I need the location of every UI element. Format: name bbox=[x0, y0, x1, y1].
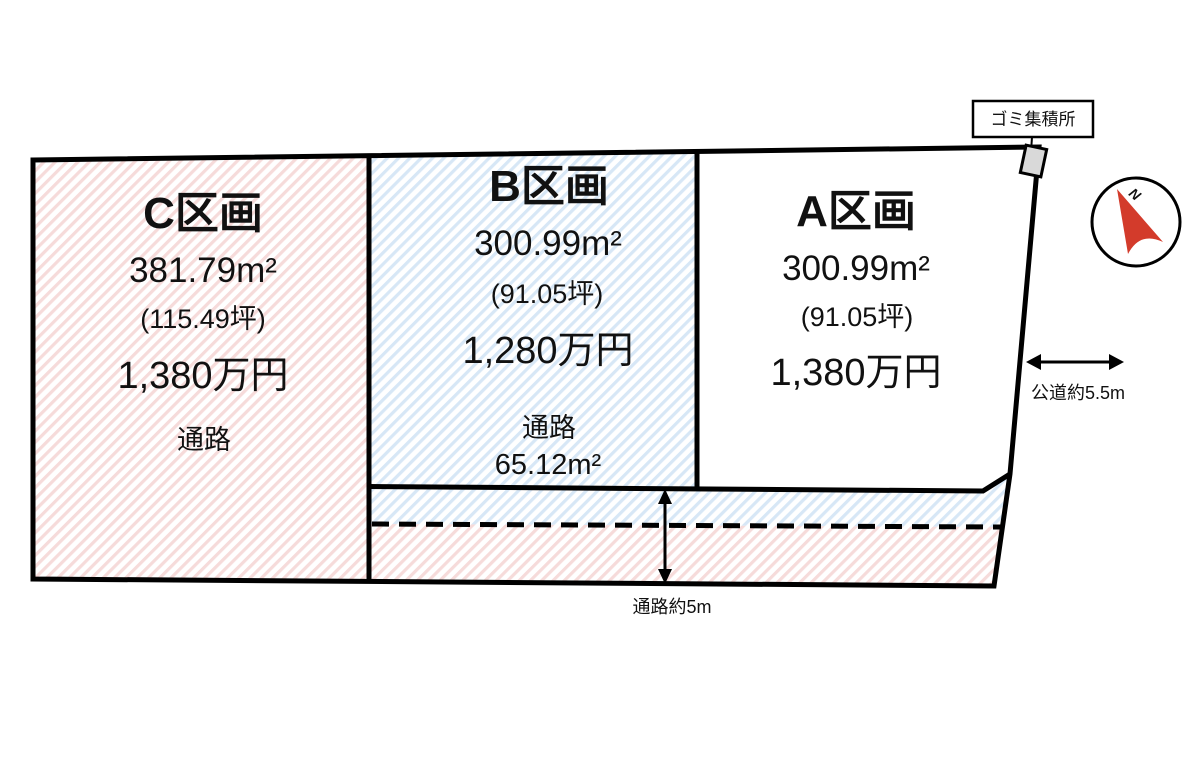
public-road-label: 公道約5.5m bbox=[1031, 383, 1125, 403]
plot-b-corridor-label: 通路 bbox=[522, 413, 576, 443]
road-arrow-right-head bbox=[1109, 354, 1124, 370]
plot-c-price: 1,380万円 bbox=[117, 355, 288, 397]
plot-b-tsubo: (91.05坪) bbox=[491, 279, 604, 309]
plot-b-name: B区画 bbox=[489, 162, 609, 211]
plot-b-corridor-area: 65.12m² bbox=[495, 449, 602, 481]
land-plot-diagram: C区画 381.79m² (115.49坪) 1,380万円 通路 B区画 30… bbox=[0, 0, 1194, 766]
plot-b-area: 300.99m² bbox=[474, 224, 622, 263]
public-road-annotation: 公道約5.5m bbox=[1026, 354, 1125, 403]
road-arrow-left-head bbox=[1026, 354, 1041, 370]
plot-b-price: 1,280万円 bbox=[462, 330, 633, 372]
plot-c-area: 381.79m² bbox=[129, 251, 277, 290]
plot-a-price: 1,380万円 bbox=[770, 352, 941, 394]
plot-a-area: 300.99m² bbox=[782, 249, 930, 288]
garbage-label: ゴミ集積所 bbox=[991, 109, 1076, 129]
garbage-station-marker bbox=[1020, 145, 1046, 177]
plot-a-name: A区画 bbox=[796, 187, 916, 236]
plot-c-name: C区画 bbox=[143, 189, 263, 238]
corridor-width-label: 通路約5m bbox=[632, 597, 711, 617]
plot-a-tsubo: (91.05坪) bbox=[801, 302, 914, 332]
plot-c-corridor-label: 通路 bbox=[177, 425, 231, 455]
corridor-c-region bbox=[369, 524, 1002, 586]
plot-c-tsubo: (115.49坪) bbox=[140, 304, 266, 334]
diagram-svg: C区画 381.79m² (115.49坪) 1,380万円 通路 B区画 30… bbox=[0, 0, 1194, 766]
compass: N bbox=[1092, 178, 1180, 266]
